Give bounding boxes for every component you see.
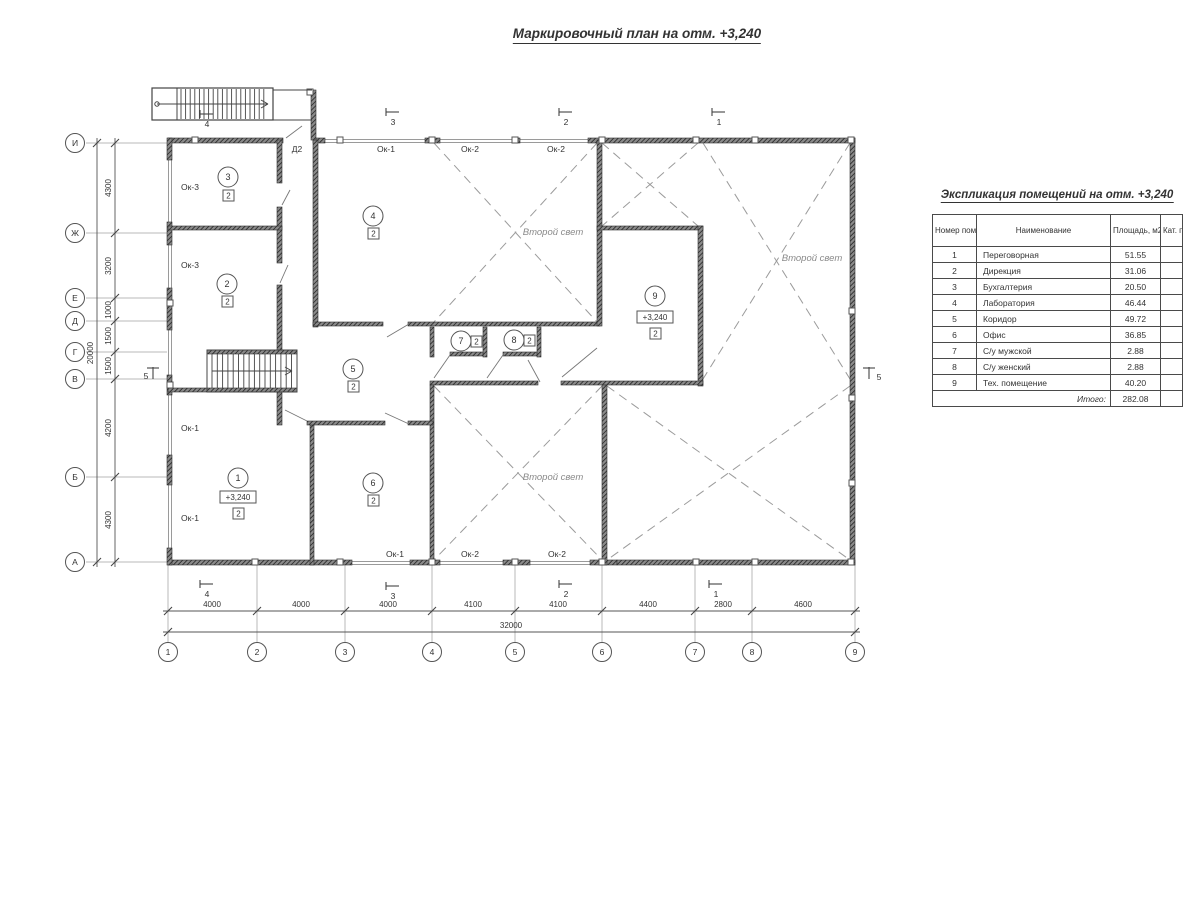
wall-segment [277,207,282,263]
section-mark-number: 1 [717,117,722,127]
category-number: 2 [225,298,230,307]
table-cell: 8 [933,359,977,375]
wall-segment [277,392,282,425]
wall-segment [168,560,352,565]
opening-label: Д2 [292,144,303,154]
door-leaf [280,265,288,283]
table-cell [1161,343,1183,359]
table-cell: 49.72 [1111,311,1161,327]
axis-bubbles-layer: ИЖЕДГВБА123456789 [66,134,865,662]
table-cell: С/у женский [977,359,1111,375]
wall-tick [849,308,855,314]
dimension-text: 3200 [104,257,113,275]
category-number: 2 [236,510,241,519]
table-header-row: Номер помещ.НаименованиеПлощадь, м2Кат. … [933,215,1183,247]
row-axis-label: А [72,557,78,567]
dimension-text: 4600 [794,600,812,609]
wall-tick [752,559,758,565]
total-dimension-text: 32000 [500,621,523,630]
column-header: Наименование [977,215,1111,247]
dimension-text: 4100 [464,600,482,609]
wall-segment [408,322,600,326]
wall-tick [599,559,605,565]
total-value: 282.08 [1111,391,1161,407]
total-label: Итого: [933,391,1111,407]
table-cell: 6 [933,327,977,343]
category-number: 2 [371,230,376,239]
wall-tick [849,480,855,486]
room-number: 4 [370,211,375,221]
table-cell: 5 [933,311,977,327]
elevation-mark: +3,240 [226,493,251,502]
second-light-label: Второй свет [782,253,843,264]
door-leaf [286,126,302,138]
wall-tick [167,382,173,388]
table-cell: Переговорная [977,247,1111,263]
opening-label: Ок-1 [181,513,199,523]
table-cell: 3 [933,279,977,295]
second-light-layer: Второй светВторой светВторой свет [434,143,850,560]
table-cell: 2.88 [1111,359,1161,375]
row-axis-label: Ж [71,228,79,238]
wall-segment [617,560,855,565]
wall-segment [167,138,172,160]
col-axis-label: 4 [430,647,435,657]
table-cell: 36.85 [1111,327,1161,343]
opening-label: Ок-2 [547,144,565,154]
dimension-text: 1500 [104,357,113,375]
wall-segment [602,385,607,565]
col-axis-label: 3 [343,647,348,657]
wall-segment [207,388,297,392]
room-number: 9 [652,291,657,301]
column-header: Номер помещ. [933,215,977,247]
wall-segment [408,421,433,425]
wall-tick [337,559,343,565]
table-row: 6Офис36.85 [933,327,1183,343]
dimension-text: 1500 [104,327,113,345]
col-axis-label: 6 [600,647,605,657]
table-cell: 20.50 [1111,279,1161,295]
walls-layer [167,90,855,565]
schedule-title: Экспликация помещений на отм. +3,240 [941,189,1174,203]
table-cell [1161,327,1183,343]
wall-segment [588,138,855,143]
wall-segment [483,327,487,357]
wall-segment [850,138,855,565]
dimension-text: 4100 [549,600,567,609]
wall-segment [167,288,172,330]
col-axis-label: 8 [750,647,755,657]
table-cell: 2.88 [1111,343,1161,359]
table-cell [1161,359,1183,375]
wall-segment [168,388,207,392]
wall-segment [537,327,541,357]
wall-tick [752,137,758,143]
wall-tick [252,559,258,565]
opening-label: Ок-1 [181,423,199,433]
section-mark-number: 4 [205,589,210,599]
wall-tick [167,300,173,306]
section-mark-number: 5 [144,371,149,381]
opening-label: Ок-3 [181,260,199,270]
second-light-label: Второй свет [523,472,584,483]
column-header: Площадь, м2 [1111,215,1161,247]
col-axis-label: 5 [513,647,518,657]
row-axis-label: И [72,138,78,148]
wall-segment [313,140,318,327]
wall-segment [313,322,383,326]
wall-segment [503,352,537,356]
horizontal-dimensions-layer: 4000400040004100410044002800460032000 [163,600,860,636]
opening-label: Ок-2 [461,549,479,559]
opening-label: Ок-1 [377,144,395,154]
table-cell: 40.20 [1111,375,1161,391]
wall-segment [168,226,282,230]
row-axis-label: Е [72,293,78,303]
dimension-text: 4200 [104,419,113,437]
col-axis-label: 2 [255,647,260,657]
section-mark-number: 3 [391,117,396,127]
wall-segment [167,222,172,245]
table-cell [1161,279,1183,295]
wall-tick [849,395,855,401]
wall-segment [277,140,282,183]
wall-tick [848,137,854,143]
dimension-text: 4000 [379,600,397,609]
wall-tick [337,137,343,143]
table-cell: 1 [933,247,977,263]
door-leaf [434,355,450,378]
stair-arrow [261,104,268,108]
floor-plan-drawing: Второй светВторой светВторой свет1+3,240… [0,0,1200,900]
row-axis-label: Б [72,472,78,482]
wall-tick [599,137,605,143]
wall-segment [168,138,283,143]
room-schedule-table: Номер помещ.НаименованиеПлощадь, м2Кат. … [932,214,1183,407]
opening-label: Ок-2 [548,549,566,559]
dimension-text: 4300 [104,179,113,197]
room-number: 3 [225,172,230,182]
stair-arrow [261,100,268,104]
wall-segment [277,285,282,352]
elevation-mark: +3,240 [643,313,668,322]
wall-tick [429,137,435,143]
wall-segment [430,381,538,385]
wall-segment [597,140,602,326]
wall-segment [167,548,172,565]
category-number: 2 [351,383,356,392]
wall-tick [512,137,518,143]
section-mark-number: 5 [877,372,882,382]
category-number: 2 [653,330,658,339]
wall-segment [430,385,434,565]
category-number: 2 [371,497,376,506]
wall-tick [192,137,198,143]
doors-layer [280,126,597,424]
room-number: 7 [458,336,463,346]
room-number: 1 [235,473,240,483]
table-cell: Дирекция [977,263,1111,279]
table-row: 9Тех. помещение40.20 [933,375,1183,391]
table-row: 3Бухгалтерия20.50 [933,279,1183,295]
table-cell: 46.44 [1111,295,1161,311]
wall-segment [207,350,297,354]
table-cell: 4 [933,295,977,311]
table-cell: Офис [977,327,1111,343]
grid-lines-layer [86,143,855,643]
col-axis-label: 9 [853,647,858,657]
section-mark-number: 2 [564,117,569,127]
wall-segment [430,327,434,357]
table-total-row: Итого:282.08 [933,391,1183,407]
total-dimension-text: 20000 [86,341,95,364]
table-cell: 31.06 [1111,263,1161,279]
door-leaf [528,360,540,382]
door-leaf [387,324,409,337]
category-number: 2 [226,192,231,201]
col-axis-label: 1 [166,647,171,657]
opening-label: Ок-3 [181,182,199,192]
category-number: 2 [474,338,479,347]
table-cell: Бухгалтерия [977,279,1111,295]
table-cell [1161,263,1183,279]
wall-tick [429,559,435,565]
table-cell: 2 [933,263,977,279]
wall-segment [310,425,314,565]
drawing-sheet: Маркировочный план на отм. +3,240 Второй… [0,0,1200,900]
table-cell [1161,391,1183,407]
table-cell [1161,375,1183,391]
table-row: 1Переговорная51.55 [933,247,1183,263]
second-light-label: Второй свет [523,227,584,238]
wall-tick [848,559,854,565]
dimension-text: 1000 [104,301,113,319]
section-mark-number: 2 [564,589,569,599]
table-cell [1161,295,1183,311]
table-cell: Лаборатория [977,295,1111,311]
table-row: 7С/у мужской2.88 [933,343,1183,359]
opening-label: Ок-2 [461,144,479,154]
section-mark-number: 1 [714,589,719,599]
table-cell: С/у мужской [977,343,1111,359]
room-number: 5 [350,364,355,374]
wall-tick [693,137,699,143]
table-cell [1161,247,1183,263]
dimension-text: 4300 [104,511,113,529]
wall-segment [450,352,483,356]
opening-label: Ок-1 [386,549,404,559]
table-cell [1161,311,1183,327]
door-leaf [282,190,290,205]
room-number: 6 [370,478,375,488]
door-leaf [285,410,307,421]
dimension-text: 4000 [203,600,221,609]
table-row: 4Лаборатория46.44 [933,295,1183,311]
wall-segment [307,421,385,425]
room-number: 8 [511,335,516,345]
wall-segment [597,226,703,230]
wall-segment [561,381,703,385]
door-leaf [562,348,597,377]
wall-ticks-layer [167,89,855,565]
room-number: 2 [224,279,229,289]
section-mark-number: 4 [205,119,210,129]
wall-segment [698,226,703,386]
wall-segment [167,455,172,485]
door-leaf [487,355,503,378]
table-cell: 9 [933,375,977,391]
stairs-layer [152,88,312,392]
column-header: Кат. пом. [1161,215,1183,247]
row-axis-label: Г [73,347,78,357]
table-cell: Тех. помещение [977,375,1111,391]
dimension-text: 4000 [292,600,310,609]
table-cell: 7 [933,343,977,359]
wall-tick [693,559,699,565]
table-cell: Коридор [977,311,1111,327]
category-number: 2 [527,337,532,346]
table-row: 8С/у женский2.88 [933,359,1183,375]
wall-segment [311,90,316,140]
row-axis-label: Д [72,316,78,326]
table-row: 2Дирекция31.06 [933,263,1183,279]
door-leaf [385,413,409,424]
row-axis-label: В [72,374,78,384]
table-cell: 51.55 [1111,247,1161,263]
dimension-text: 2800 [714,600,732,609]
dimension-text: 4400 [639,600,657,609]
wall-tick [512,559,518,565]
col-axis-label: 7 [693,647,698,657]
table-row: 5Коридор49.72 [933,311,1183,327]
